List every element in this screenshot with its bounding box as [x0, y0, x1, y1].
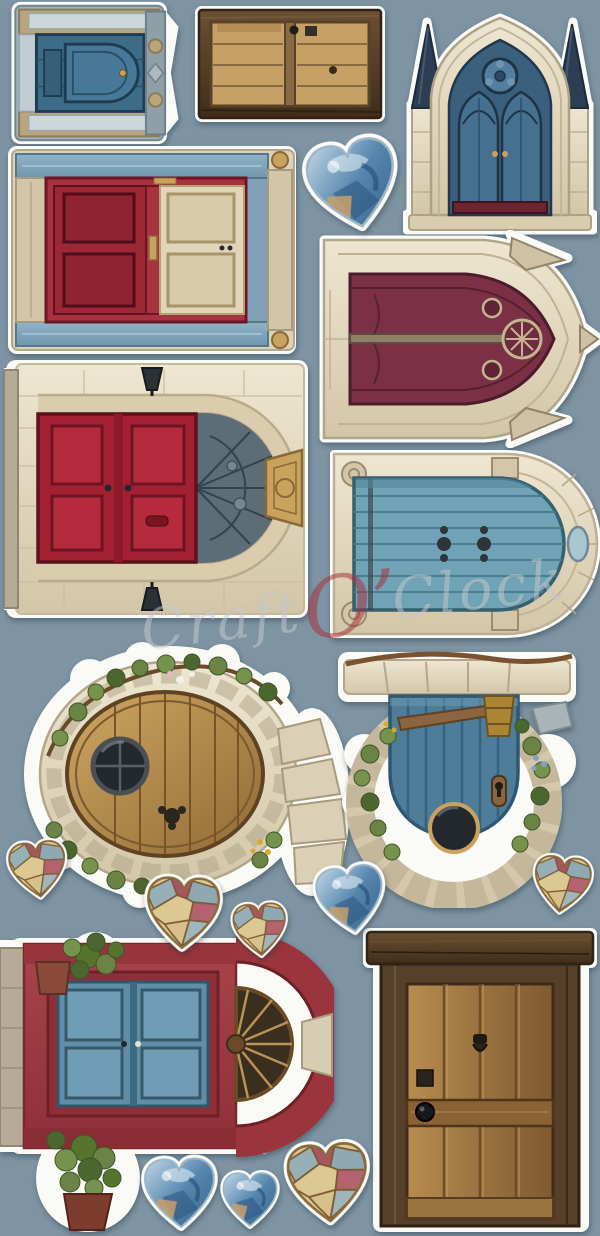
- door-knob-icon: [416, 1103, 434, 1121]
- stone-pilaster: [268, 170, 292, 330]
- round-window-icon: [430, 804, 478, 852]
- oval-wood-door: [67, 690, 263, 860]
- sticker-glass-heart: [293, 127, 416, 246]
- door-knob-icon: [135, 1041, 141, 1047]
- stone-pier: [0, 948, 24, 1146]
- stone-step: [302, 1014, 332, 1076]
- stone-plinth: [409, 215, 591, 230]
- keystone-icon: [266, 450, 302, 526]
- sticker-rustic-plank-door: [193, 4, 387, 124]
- red-leaf: [54, 186, 146, 314]
- sticker-stone-arch-red-door: [4, 356, 310, 622]
- red-double-door: [38, 414, 196, 562]
- keystone-icon: [568, 527, 588, 561]
- quatrefoil-icon: [483, 299, 501, 317]
- door-knob-icon: [121, 1041, 127, 1047]
- door-handle-icon: [502, 151, 508, 157]
- sticker-glass-heart: [308, 857, 394, 945]
- sticker-glass-heart: [219, 1168, 281, 1234]
- door-handle-icon: [492, 151, 498, 157]
- blue-double-doors: [58, 982, 208, 1106]
- finial-icon: [272, 152, 288, 168]
- door-knob-icon: [105, 485, 112, 492]
- teal-plank-door: [354, 478, 566, 610]
- door-leaf: [36, 35, 144, 112]
- knot-hole: [329, 66, 337, 74]
- sticker-gothic-maroon-portal: [314, 230, 600, 448]
- sticker-sheet: CraftO’Clock: [0, 0, 600, 1236]
- timber-lintel: [367, 932, 593, 964]
- keyhole-icon: [119, 70, 126, 77]
- sticker-mosaic-heart: [227, 899, 293, 963]
- door-knob-icon: [125, 485, 132, 492]
- blue-board: [246, 178, 268, 322]
- sticker-mosaic-heart: [280, 1135, 376, 1235]
- threshold: [453, 202, 547, 213]
- cream-leaf: [160, 186, 244, 314]
- door-leaves: [211, 22, 369, 106]
- sticker-mosaic-heart: [141, 873, 226, 958]
- stone-lintel: [344, 654, 572, 694]
- sticker-mosaic-heart: [526, 851, 598, 922]
- sticker-classical-arch-blue-door: [326, 446, 600, 642]
- finial-icon: [272, 332, 288, 348]
- quatrefoil-icon: [483, 361, 501, 379]
- knocker-icon: [473, 1034, 487, 1051]
- keyhole-icon: [220, 246, 225, 251]
- handle-plate: [146, 516, 168, 526]
- sticker-red-cream-door: [6, 144, 300, 356]
- stone-block: [532, 702, 572, 734]
- keyhole-hardware-icon: [492, 776, 506, 806]
- stone-pier: [4, 370, 18, 608]
- plank-door: [407, 984, 553, 1218]
- kick-plank: [407, 1198, 553, 1218]
- letterplate-icon: [149, 236, 157, 260]
- sticker-gothic-cathedral-door: [403, 2, 597, 236]
- keyplate-icon: [417, 1070, 433, 1086]
- sticker-mosaic-heart: [2, 836, 74, 907]
- sticker-blue-ornate-door: [6, 0, 184, 146]
- hinge-icon: [154, 178, 176, 184]
- sticker-glass-heart: [139, 1153, 222, 1236]
- latch-icon: [305, 26, 317, 36]
- handle-hole-icon: [290, 26, 299, 35]
- sticker-rustic-wooden-door: [361, 922, 600, 1236]
- carved-ornament: [146, 12, 165, 135]
- bucket-icon: [484, 696, 514, 736]
